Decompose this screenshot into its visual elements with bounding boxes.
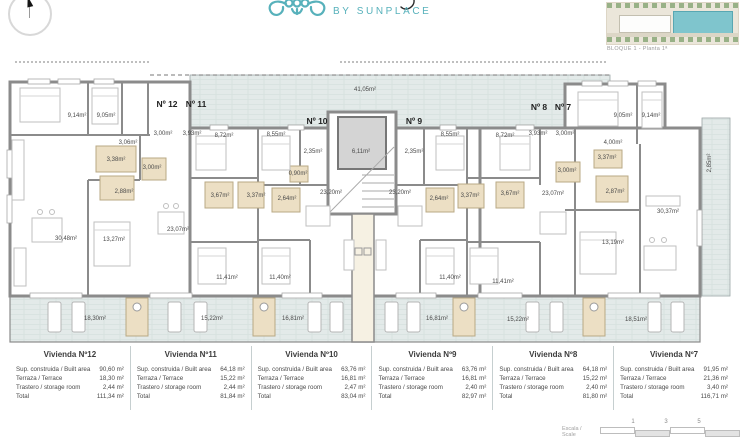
scale-tick: 3 (664, 419, 667, 425)
unit-column: Vivienda Nº12Sup. construida / Built are… (10, 346, 130, 410)
area-row-value: 64,18 m² (220, 365, 244, 374)
area-row-label: Trastero / storage room (499, 383, 563, 392)
area-row: Sup. construida / Built area90,60 m² (16, 365, 124, 374)
area-row: Total111,34 m² (16, 392, 124, 401)
area-row-value: 2,40 m² (465, 383, 486, 392)
area-row-label: Sup. construida / Built area (258, 365, 332, 374)
scale-tick: 1 (631, 419, 634, 425)
area-row-label: Sup. construida / Built area (499, 365, 573, 374)
floor-plan-sheet: BY SUNPLACE BLOQUE 1 - Planta 1ª (0, 0, 740, 445)
unit-title: Vivienda Nº11 (137, 350, 245, 359)
area-row-label: Sup. construida / Built area (16, 365, 90, 374)
unit-title: Vivienda Nº9 (378, 350, 486, 359)
area-row-label: Trastero / storage room (16, 383, 80, 392)
area-row: Total116,71 m² (620, 392, 728, 401)
area-row-value: 82,97 m² (462, 392, 486, 401)
area-row: Trastero / storage room2,47 m² (258, 383, 366, 392)
area-row-value: 81,84 m² (220, 392, 244, 401)
unit-title: Vivienda Nº8 (499, 350, 607, 359)
area-row-label: Trastero / storage room (378, 383, 442, 392)
area-row-value: 2,44 m² (103, 383, 124, 392)
area-row: Terraza / Terrace21,36 m² (620, 374, 728, 383)
area-row-value: 116,71 m² (701, 392, 728, 401)
area-row-value: 15,22 m² (220, 374, 244, 383)
area-row-value: 64,18 m² (583, 365, 607, 374)
area-row-value: 63,76 m² (341, 365, 365, 374)
area-row-label: Total (258, 392, 271, 401)
scale-tick: 5 (697, 419, 700, 425)
area-row: Total82,97 m² (378, 392, 486, 401)
area-row-label: Trastero / storage room (258, 383, 322, 392)
area-row-value: 18,30 m² (99, 374, 123, 383)
area-row: Trastero / storage room2,44 m² (137, 383, 245, 392)
units-table: Vivienda Nº12Sup. construida / Built are… (10, 346, 734, 410)
area-row: Terraza / Terrace16,81 m² (378, 374, 486, 383)
area-row-value: 16,81 m² (462, 374, 486, 383)
area-row: Terraza / Terrace15,22 m² (499, 374, 607, 383)
area-row-label: Total (620, 392, 633, 401)
area-row-label: Trastero / storage room (620, 383, 684, 392)
scale-bar: Escala / Scale 135 (562, 424, 740, 438)
area-row: Sup. construida / Built area64,18 m² (499, 365, 607, 374)
unit-column: Vivienda Nº8Sup. construida / Built area… (492, 346, 613, 410)
area-row-label: Sup. construida / Built area (137, 365, 211, 374)
area-row-label: Terraza / Terrace (620, 374, 666, 383)
scale-segments: 135 (600, 427, 740, 434)
area-row-label: Trastero / storage room (137, 383, 201, 392)
area-row: Sup. construida / Built area63,76 m² (378, 365, 486, 374)
area-row-value: 90,60 m² (99, 365, 123, 374)
area-row-value: 15,22 m² (583, 374, 607, 383)
scale-segment (600, 427, 635, 434)
area-row-value: 2,40 m² (586, 383, 607, 392)
area-row-value: 111,34 m² (97, 392, 124, 401)
area-row-label: Sup. construida / Built area (378, 365, 452, 374)
area-row-value: 63,76 m² (462, 365, 486, 374)
unit-column: Vivienda Nº10Sup. construida / Built are… (251, 346, 372, 410)
area-row: Trastero / storage room2,40 m² (499, 383, 607, 392)
area-row: Sup. construida / Built area64,18 m² (137, 365, 245, 374)
unit-column: Vivienda Nº9Sup. construida / Built area… (371, 346, 492, 410)
area-row: Total83,04 m² (258, 392, 366, 401)
scale-label: Escala / Scale (562, 426, 594, 438)
area-row: Total81,80 m² (499, 392, 607, 401)
area-row-label: Terraza / Terrace (258, 374, 304, 383)
unit-column: Vivienda Nº11Sup. construida / Built are… (130, 346, 251, 410)
unit-column: Vivienda Nº7Sup. construida / Built area… (613, 346, 734, 410)
area-row: Terraza / Terrace16,81 m² (258, 374, 366, 383)
area-row-label: Terraza / Terrace (137, 374, 183, 383)
unit-title: Vivienda Nº12 (16, 350, 124, 359)
area-row: Terraza / Terrace15,22 m² (137, 374, 245, 383)
area-row-label: Sup. construida / Built area (620, 365, 694, 374)
area-row: Sup. construida / Built area91,95 m² (620, 365, 728, 374)
unit-title: Vivienda Nº10 (258, 350, 366, 359)
area-row: Trastero / storage room3,40 m² (620, 383, 728, 392)
area-row-value: 3,40 m² (707, 383, 728, 392)
area-row: Trastero / storage room2,44 m² (16, 383, 124, 392)
unit-title: Vivienda Nº7 (620, 350, 728, 359)
scale-segment (670, 427, 705, 434)
area-row-value: 81,80 m² (583, 392, 607, 401)
area-row-value: 83,04 m² (341, 392, 365, 401)
scale-segment (705, 430, 740, 437)
area-row: Sup. construida / Built area63,76 m² (258, 365, 366, 374)
area-row-value: 21,36 m² (704, 374, 728, 383)
area-row-value: 2,44 m² (224, 383, 245, 392)
area-row-label: Terraza / Terrace (378, 374, 424, 383)
area-row-value: 91,95 m² (704, 365, 728, 374)
area-row: Terraza / Terrace18,30 m² (16, 374, 124, 383)
area-row-label: Total (16, 392, 29, 401)
area-row-label: Total (378, 392, 391, 401)
area-row: Total81,84 m² (137, 392, 245, 401)
scale-segment (635, 430, 670, 437)
area-row-label: Total (499, 392, 512, 401)
area-row-value: 2,47 m² (345, 383, 366, 392)
area-row-label: Total (137, 392, 150, 401)
area-row-label: Terraza / Terrace (16, 374, 62, 383)
area-row-label: Terraza / Terrace (499, 374, 545, 383)
area-row: Trastero / storage room2,40 m² (378, 383, 486, 392)
area-row-value: 16,81 m² (341, 374, 365, 383)
